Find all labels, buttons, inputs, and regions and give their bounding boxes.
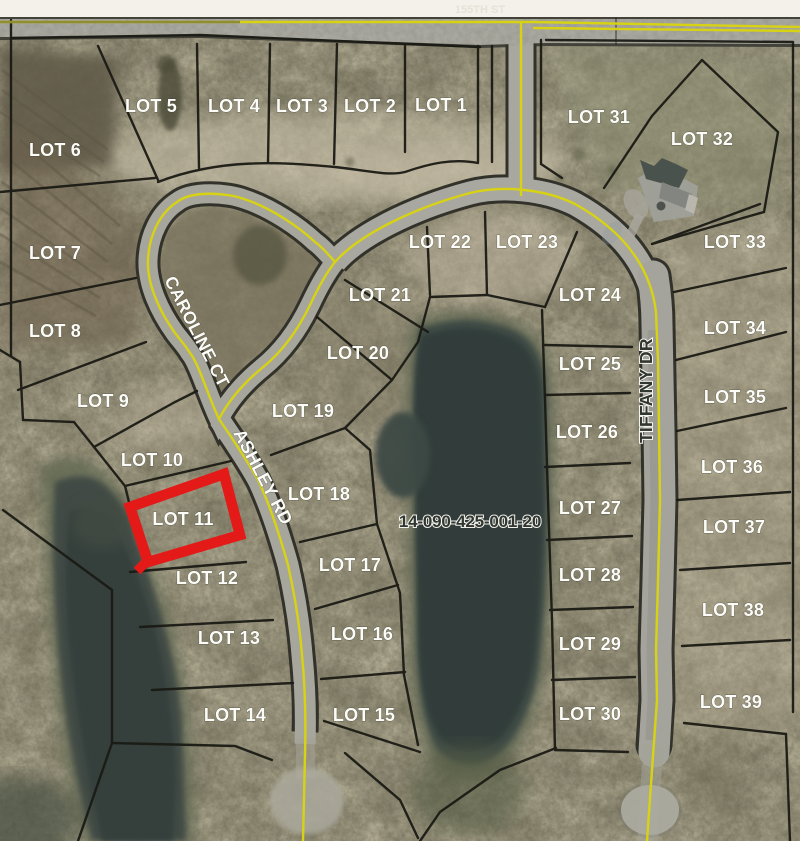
svg-text:LOT 20: LOT 20: [327, 343, 389, 363]
svg-text:LOT 34: LOT 34: [704, 318, 766, 338]
svg-text:TIFFANY DR: TIFFANY DR: [636, 338, 656, 443]
svg-text:LOT 23: LOT 23: [496, 232, 558, 252]
svg-text:LOT 32: LOT 32: [671, 129, 733, 149]
svg-text:LOT 37: LOT 37: [703, 517, 765, 537]
svg-text:LOT 31: LOT 31: [568, 107, 630, 127]
svg-text:LOT 2: LOT 2: [344, 96, 396, 116]
svg-text:155TH ST: 155TH ST: [455, 4, 505, 16]
svg-text:LOT 30: LOT 30: [559, 704, 621, 724]
svg-text:LOT 12: LOT 12: [176, 568, 238, 588]
svg-text:LOT 33: LOT 33: [704, 232, 766, 252]
svg-text:LOT 26: LOT 26: [556, 422, 618, 442]
svg-text:LOT 39: LOT 39: [700, 692, 762, 712]
svg-text:LOT 7: LOT 7: [29, 243, 81, 263]
svg-text:LOT 1: LOT 1: [415, 95, 467, 115]
svg-text:LOT 29: LOT 29: [559, 634, 621, 654]
svg-text:LOT 6: LOT 6: [29, 140, 81, 160]
svg-text:LOT 21: LOT 21: [349, 285, 411, 305]
svg-text:LOT 3: LOT 3: [276, 96, 328, 116]
svg-text:LOT 14: LOT 14: [204, 705, 266, 725]
svg-text:LOT 16: LOT 16: [331, 624, 393, 644]
svg-text:LOT 22: LOT 22: [409, 232, 471, 252]
svg-text:LOT 24: LOT 24: [559, 285, 621, 305]
svg-text:LOT 17: LOT 17: [319, 555, 381, 575]
svg-text:LOT 19: LOT 19: [272, 401, 334, 421]
svg-text:LOT 15: LOT 15: [333, 705, 395, 725]
svg-text:LOT 10: LOT 10: [121, 450, 183, 470]
svg-text:14-090-425-001-20: 14-090-425-001-20: [399, 512, 541, 531]
svg-text:LOT 4: LOT 4: [208, 96, 260, 116]
svg-text:LOT 25: LOT 25: [559, 354, 621, 374]
svg-text:LOT 13: LOT 13: [198, 628, 260, 648]
svg-text:LOT 28: LOT 28: [559, 565, 621, 585]
svg-text:LOT 5: LOT 5: [125, 96, 177, 116]
svg-text:LOT 8: LOT 8: [29, 321, 81, 341]
svg-text:LOT 11: LOT 11: [152, 509, 213, 529]
svg-text:LOT 38: LOT 38: [702, 600, 764, 620]
svg-text:LOT 35: LOT 35: [704, 387, 766, 407]
svg-text:LOT 9: LOT 9: [77, 391, 129, 411]
svg-text:LOT 27: LOT 27: [559, 498, 621, 518]
svg-text:LOT 18: LOT 18: [288, 484, 350, 504]
svg-text:LOT 36: LOT 36: [701, 457, 763, 477]
